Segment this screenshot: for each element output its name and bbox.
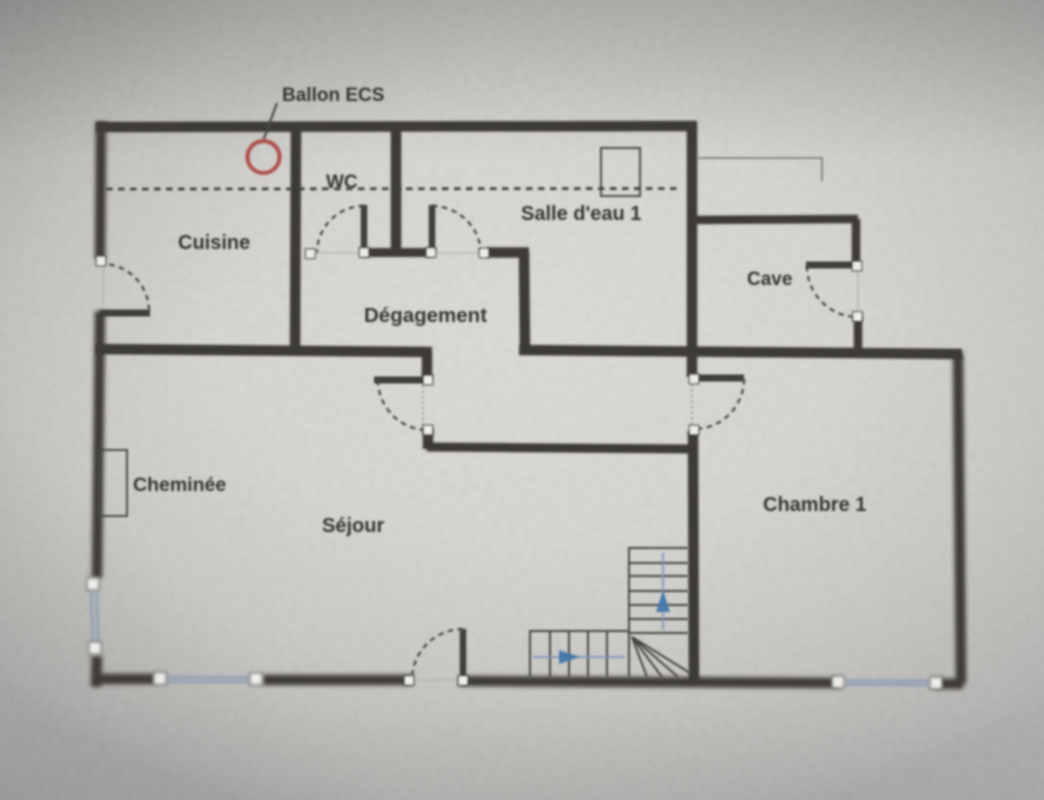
svg-text:Salle d'eau 1: Salle d'eau 1 [521, 203, 641, 225]
svg-text:Cuisine: Cuisine [178, 232, 250, 254]
svg-text:Séjour: Séjour [322, 515, 384, 537]
svg-text:Cave: Cave [747, 269, 792, 290]
svg-text:WC: WC [326, 172, 358, 193]
svg-text:Dégagement: Dégagement [364, 304, 487, 327]
svg-text:Cheminée: Cheminée [133, 474, 226, 496]
svg-text:Ballon ECS: Ballon ECS [282, 85, 384, 106]
svg-text:Chambre 1: Chambre 1 [763, 494, 866, 516]
